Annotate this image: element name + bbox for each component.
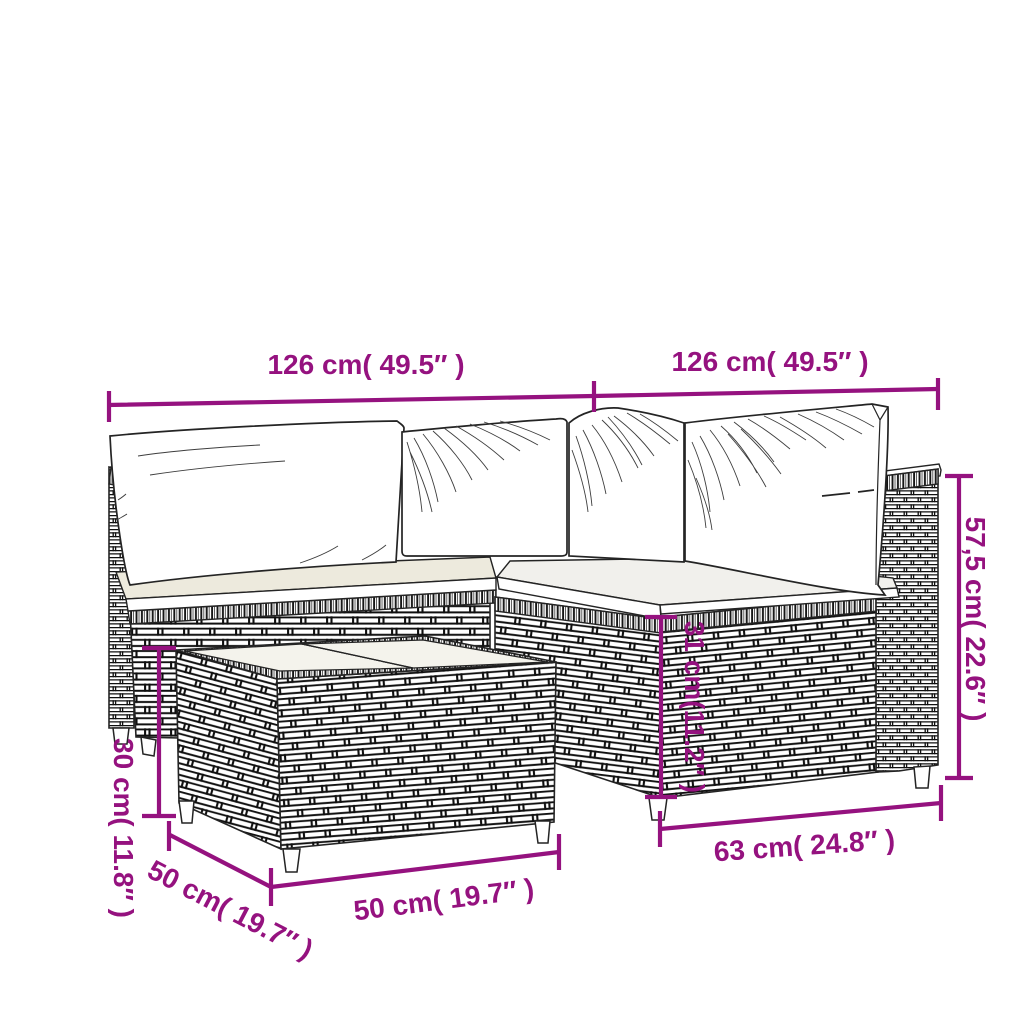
svg-text:31 cm(11.2″ ): 31 cm(11.2″ ) xyxy=(679,621,710,793)
svg-text:30 cm( 11.8″ ): 30 cm( 11.8″ ) xyxy=(108,738,139,918)
svg-text:126 cm( 49.5″ ): 126 cm( 49.5″ ) xyxy=(671,346,868,377)
svg-text:126 cm( 49.5″ ): 126 cm( 49.5″ ) xyxy=(267,349,464,380)
svg-text:57,5 cm( 22.6″ ): 57,5 cm( 22.6″ ) xyxy=(960,517,991,722)
